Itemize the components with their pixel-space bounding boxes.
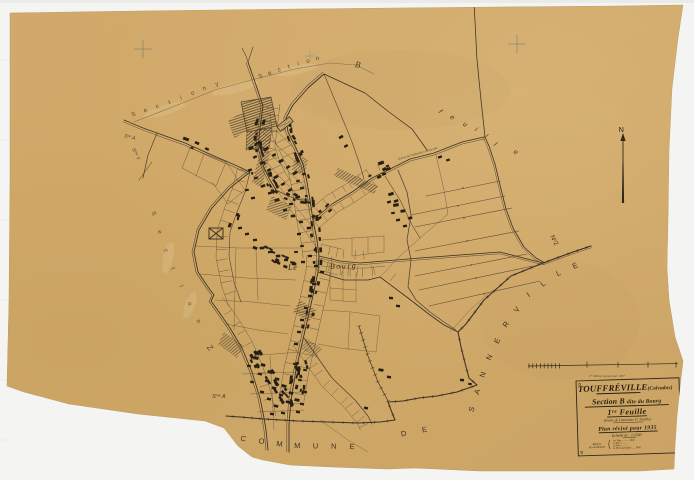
svg-text:M: M xyxy=(294,441,300,450)
svg-text:1re édition à jour pour 1937: 1re édition à jour pour 1937 xyxy=(589,374,625,378)
svg-text:U: U xyxy=(313,441,319,450)
svg-text:Bourg: Bourg xyxy=(330,261,358,271)
svg-text:Échelle de : 1/2500: Échelle de : 1/2500 xyxy=(611,432,642,438)
svg-text:N: N xyxy=(331,442,337,451)
svg-text:N: N xyxy=(619,125,624,134)
svg-text:de nivellement: de nivellement xyxy=(589,446,606,450)
svg-text:M: M xyxy=(276,439,284,449)
